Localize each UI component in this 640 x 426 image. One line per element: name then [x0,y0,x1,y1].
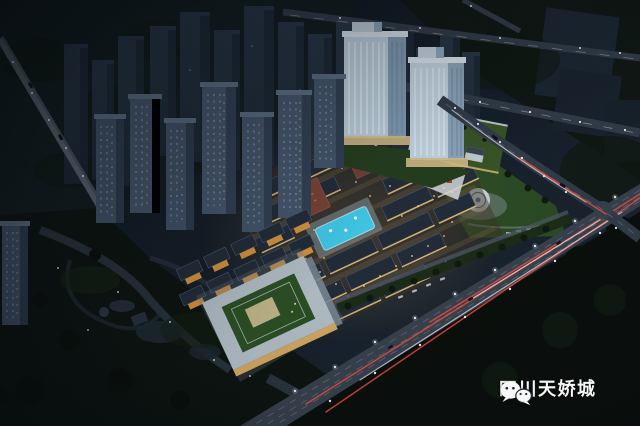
rendering-canvas [0,0,640,426]
watermark: 四川天娇城 [499,380,597,398]
wechat-icon [499,380,534,407]
corner-shade [0,0,640,426]
aerial-rendering-image: 四川天娇城 [0,0,640,426]
